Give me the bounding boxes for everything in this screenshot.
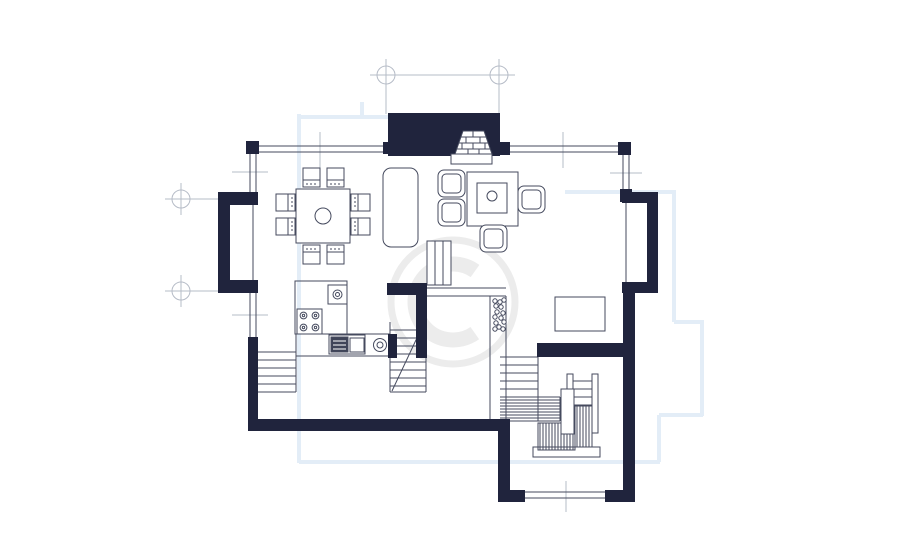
kitchen-wall-unit (328, 285, 347, 304)
interior-wall (537, 343, 623, 357)
floor-plan-drawing (0, 0, 898, 556)
hearth (451, 154, 492, 164)
dining-chair (303, 245, 320, 264)
dining-chair (351, 218, 370, 235)
window-post (618, 142, 631, 155)
stair-room-wall (498, 419, 510, 502)
pebble (494, 304, 498, 308)
bottom-wall (248, 419, 510, 431)
pebble (499, 316, 503, 320)
pebble (499, 305, 503, 309)
pebble (501, 311, 505, 315)
alcove-wall (647, 192, 658, 293)
kitchen-sink (374, 339, 387, 352)
pebble (502, 298, 506, 302)
pebble (501, 327, 505, 331)
side-table (555, 297, 605, 331)
right-wall (623, 291, 635, 502)
dining-table (296, 189, 350, 243)
alcove-wall (622, 282, 658, 293)
media-cabinet (427, 241, 451, 285)
stair-divider (561, 389, 574, 434)
floor-plan-canvas (0, 0, 898, 556)
coffee-table (467, 172, 518, 226)
pebble (493, 315, 497, 319)
stair-room-wall (498, 490, 525, 502)
bay-wall (218, 280, 258, 293)
stair-wall (416, 283, 427, 358)
stair-wall-post (388, 334, 397, 358)
dining-chair (327, 245, 344, 264)
left-wall (248, 337, 258, 427)
window-post (246, 141, 259, 154)
bay-wall (218, 192, 230, 293)
stair-stringer (592, 374, 598, 433)
dining-chair (351, 194, 370, 211)
pebble (495, 310, 499, 314)
pebble (494, 321, 498, 325)
console-table (383, 168, 418, 247)
pebble (493, 327, 497, 331)
pebble (493, 299, 497, 303)
pebble (502, 320, 506, 324)
window-post (383, 142, 395, 154)
window-post (497, 142, 510, 155)
window-post (620, 189, 632, 202)
